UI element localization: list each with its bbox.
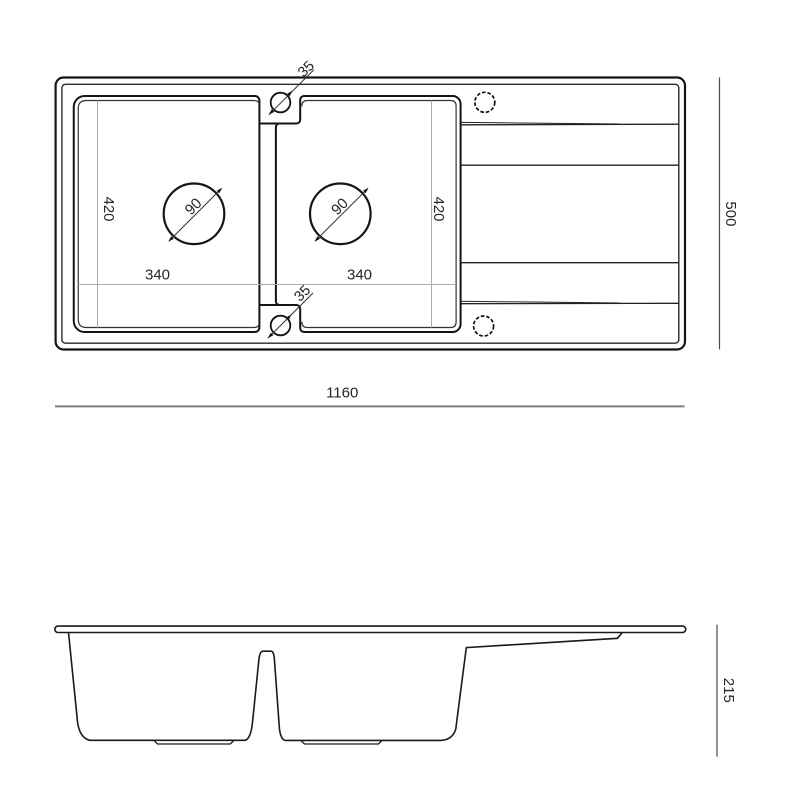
svg-text:90: 90 — [182, 195, 206, 219]
svg-text:420: 420 — [430, 196, 447, 221]
svg-text:500: 500 — [722, 201, 739, 226]
svg-text:1160: 1160 — [326, 385, 358, 402]
svg-text:35: 35 — [291, 282, 314, 305]
svg-text:340: 340 — [347, 266, 372, 283]
svg-text:340: 340 — [145, 266, 170, 283]
svg-text:420: 420 — [100, 196, 117, 221]
svg-text:215: 215 — [720, 678, 737, 703]
svg-text:90: 90 — [328, 195, 352, 219]
